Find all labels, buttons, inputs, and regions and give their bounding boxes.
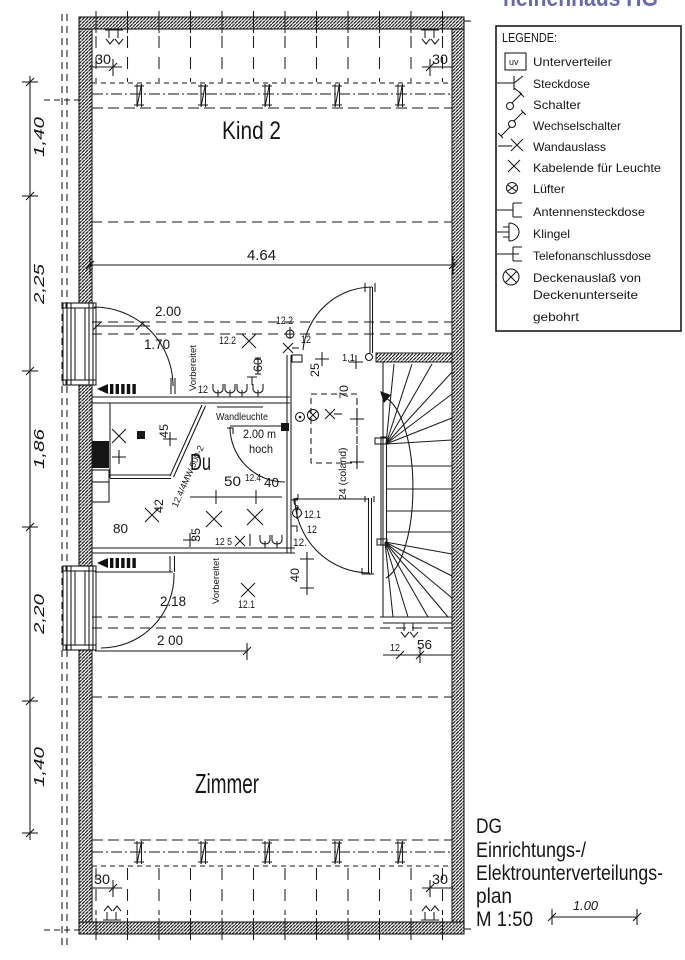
svg-text:Kabelende für Leuchte: Kabelende für Leuchte bbox=[533, 161, 661, 175]
svg-text:Deckenauslaß von: Deckenauslaß von bbox=[533, 271, 641, 285]
svg-text:Steckdose: Steckdose bbox=[533, 77, 590, 91]
svg-text:12.2: 12.2 bbox=[219, 335, 236, 347]
svg-text:gebohrt: gebohrt bbox=[533, 310, 580, 324]
svg-text:25: 25 bbox=[308, 363, 322, 377]
svg-text:1.70: 1.70 bbox=[144, 336, 170, 352]
svg-text:hoch: hoch bbox=[249, 442, 273, 456]
svg-text:1.00: 1.00 bbox=[573, 898, 599, 913]
svg-text:70: 70 bbox=[337, 385, 351, 399]
svg-text:24 (coland): 24 (coland) bbox=[337, 447, 349, 500]
svg-text:plan: plan bbox=[476, 885, 512, 908]
svg-text:1,40: 1,40 bbox=[31, 116, 48, 157]
svg-text:12: 12 bbox=[390, 642, 400, 654]
svg-text:Wandauslass: Wandauslass bbox=[533, 140, 606, 154]
svg-text:12 5: 12 5 bbox=[215, 536, 232, 548]
svg-text:12.: 12. bbox=[293, 537, 307, 549]
svg-text:Kind 2: Kind 2 bbox=[222, 117, 281, 145]
svg-text:Lüfter: Lüfter bbox=[533, 182, 565, 196]
svg-text:12: 12 bbox=[301, 334, 311, 346]
svg-text:30: 30 bbox=[94, 871, 110, 887]
svg-text:45: 45 bbox=[157, 424, 171, 438]
svg-text:80: 80 bbox=[113, 521, 128, 536]
svg-text:12.1: 12.1 bbox=[304, 509, 321, 521]
svg-text:Wechselschalter: Wechselschalter bbox=[533, 119, 621, 133]
svg-text:2.18: 2.18 bbox=[160, 593, 186, 609]
svg-text:12.4: 12.4 bbox=[245, 473, 261, 484]
svg-text:30: 30 bbox=[432, 51, 448, 67]
svg-text:Telefonanschlussdose: Telefonanschlussdose bbox=[533, 249, 651, 263]
svg-text:30: 30 bbox=[432, 871, 448, 887]
svg-text:2,20: 2,20 bbox=[31, 593, 48, 635]
svg-text:Elektrounterverteilungs-: Elektrounterverteilungs- bbox=[476, 862, 663, 885]
svg-text:uv: uv bbox=[509, 57, 519, 67]
svg-text:DG: DG bbox=[476, 815, 502, 838]
svg-text:56: 56 bbox=[417, 637, 432, 652]
svg-text:Zimmer: Zimmer bbox=[195, 768, 259, 799]
svg-text:12: 12 bbox=[307, 524, 317, 536]
svg-text:12: 12 bbox=[198, 384, 208, 396]
svg-text:2.00 m: 2.00 m bbox=[243, 427, 276, 441]
svg-text:2,25: 2,25 bbox=[31, 263, 48, 305]
svg-text:Einrichtungs-/: Einrichtungs-/ bbox=[476, 839, 586, 862]
svg-text:Deckenunterseite: Deckenunterseite bbox=[533, 288, 638, 302]
svg-text:40: 40 bbox=[288, 568, 302, 582]
svg-text:12.1: 12.1 bbox=[238, 599, 255, 611]
svg-text:Unterverteiler: Unterverteiler bbox=[533, 55, 612, 69]
svg-text:Klingel: Klingel bbox=[533, 227, 570, 241]
svg-text:LEGENDE:: LEGENDE: bbox=[502, 30, 557, 45]
svg-text:Vorbereitet: Vorbereitet bbox=[211, 558, 222, 604]
svg-text:2.00: 2.00 bbox=[155, 303, 181, 319]
svg-text:M 1:50: M 1:50 bbox=[476, 908, 533, 931]
svg-text:Antennensteckdose: Antennensteckdose bbox=[533, 205, 645, 219]
svg-text:heinenhaus HG: heinenhaus HG bbox=[503, 0, 658, 12]
svg-text:1,86: 1,86 bbox=[31, 428, 48, 469]
svg-text:Wandleuchte: Wandleuchte bbox=[216, 411, 268, 423]
svg-text:50: 50 bbox=[224, 473, 241, 489]
svg-text:30: 30 bbox=[95, 51, 111, 67]
svg-text:1,40: 1,40 bbox=[31, 746, 48, 787]
svg-text:40: 40 bbox=[264, 475, 279, 490]
svg-text:4.64: 4.64 bbox=[247, 247, 276, 264]
svg-text:2 00: 2 00 bbox=[157, 632, 183, 648]
svg-text:12.2: 12.2 bbox=[276, 315, 293, 327]
svg-text:Schalter: Schalter bbox=[533, 98, 581, 112]
svg-text:42: 42 bbox=[152, 499, 166, 513]
